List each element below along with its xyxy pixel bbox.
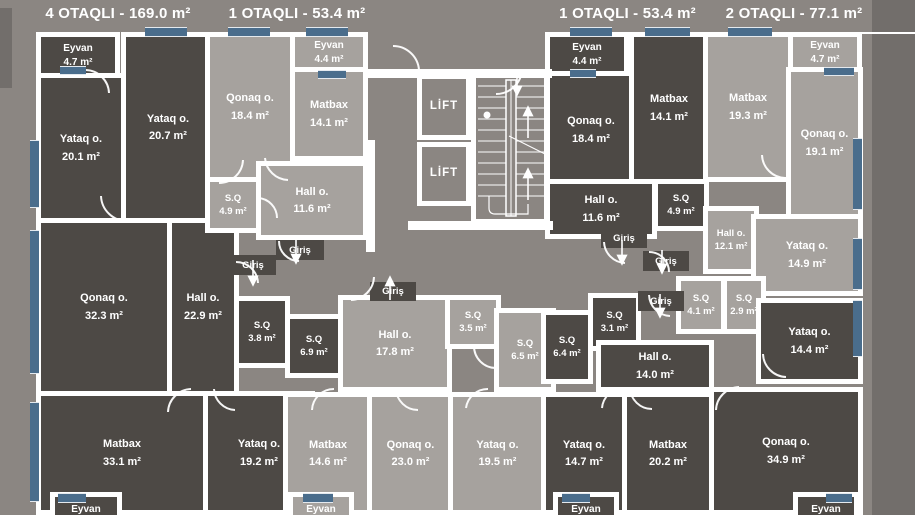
apartment-title-1otaqli-right: 1 OTAQLI - 53.4 m²: [555, 1, 700, 25]
window-segment: [562, 493, 590, 503]
room-label: Yataq o.: [238, 438, 280, 451]
window-segment: [60, 66, 86, 75]
room-label: Matbax: [650, 93, 688, 106]
apartment-title-2otaqli: 2 OTAQLI - 77.1 m²: [724, 1, 864, 25]
room-area: 19.5 m²: [479, 456, 517, 468]
room-label: Qonaq o.: [387, 439, 435, 452]
room-label: Yataq o.: [60, 133, 102, 146]
room-label: Eyvan: [571, 504, 600, 515]
room-area: 2.9 m²: [730, 306, 757, 317]
outside-shade-right: [872, 0, 915, 515]
room-area: 4.9 m²: [667, 206, 694, 217]
room-eyvan-4-4-left: Eyvan 4.4 m²: [290, 32, 368, 72]
apartment-title-4otaqli: 4 OTAQLI - 169.0 m²: [38, 1, 198, 25]
room-area: 14.7 m²: [565, 456, 603, 468]
apartment-title-1otaqli-left: 1 OTAQLI - 53.4 m²: [222, 1, 372, 25]
room-sq-4-9-left: S.Q 4.9 m²: [205, 177, 261, 233]
room-label: Eyvan: [63, 43, 92, 55]
room-area: 20.1 m²: [62, 151, 100, 163]
window-segment: [306, 27, 348, 37]
room-area: 11.6 m²: [582, 212, 619, 224]
window-segment: [228, 27, 270, 37]
room-area: 19.3 m²: [729, 110, 767, 122]
room-label: Matbax: [310, 99, 348, 112]
room-label: Hall o.: [186, 292, 219, 305]
room-area: 14.1 m²: [310, 117, 348, 129]
lift-label: LİFT: [430, 167, 458, 181]
room-eyvan-4-7-right: Eyvan 4.7 m²: [788, 32, 862, 72]
room-label: Eyvan: [306, 504, 335, 515]
room-sq-4-9-right: S.Q 4.9 m²: [653, 179, 709, 231]
room-sq-6-4: S.Q 6.4 m²: [541, 310, 593, 384]
room-label: S.Q: [306, 334, 322, 345]
lift-2: LİFT: [417, 142, 471, 206]
room-yataq-20-7: Yataq o. 20.7 m²: [121, 32, 215, 223]
room-label: Yataq o.: [786, 240, 828, 253]
room-qonaq-18-4-left: Qonaq o. 18.4 m²: [205, 32, 295, 182]
room-area: 6.4 m²: [553, 348, 580, 359]
room-qonaq-18-4-right: Qonaq o. 18.4 m²: [545, 71, 637, 189]
room-matbax-20-2: Matbax 20.2 m²: [622, 392, 714, 515]
entrance-label-bottom-right: Giriş: [638, 291, 684, 311]
room-area: 12.1 m²: [715, 241, 748, 252]
room-label: Eyvan: [71, 504, 100, 515]
room-area: 4.4 m²: [315, 54, 344, 65]
entrance-text: Giriş: [655, 256, 677, 267]
room-area: 34.9 m²: [767, 454, 805, 466]
room-qonaq-32-3: Qonaq o. 32.3 m²: [36, 218, 172, 396]
room-sq-6-9: S.Q 6.9 m²: [285, 314, 343, 378]
outside-shade-topleft: [0, 8, 12, 88]
corridor-wall-left: [366, 140, 375, 252]
room-qonaq-23-0: Qonaq o. 23.0 m²: [367, 392, 454, 515]
room-label: Yataq o.: [476, 439, 518, 452]
room-hall-11-6-left: Hall o. 11.6 m²: [256, 161, 368, 240]
room-label: S.Q: [465, 310, 481, 321]
entrance-label-center-left: Giriş: [276, 240, 324, 260]
room-label: S.Q: [254, 320, 270, 331]
room-label: Hall o.: [378, 329, 411, 342]
entrance-text: Giriş: [382, 286, 404, 297]
entrance-label-left: Giriş: [230, 255, 276, 275]
room-label: S.Q: [736, 293, 752, 304]
room-hall-17-8: Hall o. 17.8 m²: [338, 295, 452, 392]
staircase: [471, 71, 549, 224]
room-area: 20.2 m²: [649, 456, 687, 468]
window-segment: [30, 402, 39, 502]
room-area: 19.1 m²: [806, 146, 844, 158]
window-segment: [853, 238, 862, 290]
room-label: Yataq o.: [147, 113, 189, 126]
window-segment: [58, 493, 86, 503]
room-yataq-20-1: Yataq o. 20.1 m²: [36, 73, 126, 223]
room-sq-3-5: S.Q 3.5 m²: [445, 295, 501, 349]
corridor-wall-top: [366, 69, 552, 78]
room-yataq-14-9: Yataq o. 14.9 m²: [751, 214, 863, 296]
room-label: Hall o.: [295, 186, 328, 199]
window-segment: [145, 27, 187, 37]
room-label: Yataq o.: [563, 439, 605, 452]
room-area: 32.3 m²: [85, 310, 123, 322]
room-area: 3.8 m²: [248, 333, 275, 344]
room-area: 14.6 m²: [309, 456, 347, 468]
room-area: 20.7 m²: [149, 130, 187, 142]
entrance-text: Giriş: [242, 260, 264, 271]
window-segment: [570, 69, 596, 78]
room-hall-22-9: Hall o. 22.9 m²: [167, 218, 239, 396]
room-label: Qonaq o.: [801, 128, 849, 141]
room-area: 17.8 m²: [376, 346, 414, 358]
floor-plan: 4 OTAQLI - 169.0 m² 1 OTAQLI - 53.4 m² 1…: [0, 0, 915, 515]
room-area: 4.7 m²: [811, 54, 840, 65]
room-area: 14.1 m²: [650, 111, 688, 123]
entrance-label-right: Giriş: [643, 251, 689, 271]
room-matbax-19-3: Matbax 19.3 m²: [703, 32, 793, 182]
room-label: Eyvan: [314, 40, 343, 52]
room-label: S.Q: [559, 335, 575, 346]
window-segment: [645, 27, 690, 37]
room-label: Matbax: [649, 439, 687, 452]
room-area: 19.2 m²: [240, 456, 278, 468]
room-matbax-14-1-right: Matbax 14.1 m²: [629, 32, 709, 184]
window-segment: [826, 493, 852, 503]
room-label: Qonaq o.: [226, 92, 274, 105]
room-area: 22.9 m²: [184, 310, 222, 322]
window-segment: [570, 27, 612, 37]
room-label: S.Q: [517, 338, 533, 349]
room-label: Qonaq o.: [80, 292, 128, 305]
room-label: S.Q: [225, 193, 241, 204]
room-label: Eyvan: [810, 40, 839, 52]
room-area: 14.0 m²: [636, 369, 674, 381]
window-segment: [853, 138, 862, 210]
room-label: Eyvan: [811, 504, 840, 515]
room-area: 11.6 m²: [293, 203, 330, 215]
entrance-text: Giriş: [613, 233, 635, 244]
room-area: 3.1 m²: [601, 323, 628, 334]
entrance-label-center-right: Giriş: [601, 228, 647, 248]
room-area: 4.9 m²: [219, 206, 246, 217]
room-qonaq-19-1: Qonaq o. 19.1 m²: [786, 67, 863, 219]
room-matbax-14-1-left: Matbax 14.1 m²: [290, 67, 368, 161]
room-area: 18.4 m²: [231, 110, 269, 122]
entrance-text: Giriş: [289, 245, 311, 256]
room-area: 4.4 m²: [573, 56, 602, 67]
entrance-label-bottom-center: Giriş: [370, 282, 416, 301]
room-label: Yataq o.: [788, 326, 830, 339]
room-yataq-14-4: Yataq o. 14.4 m²: [756, 298, 863, 384]
room-area: 14.4 m²: [791, 344, 829, 356]
corridor-wall-bottom: [408, 221, 553, 230]
room-label: Eyvan: [572, 42, 601, 54]
window-segment: [30, 140, 39, 208]
room-label: S.Q: [693, 293, 709, 304]
room-hall-14-0: Hall o. 14.0 m²: [596, 340, 714, 392]
window-segment: [853, 300, 862, 357]
room-label: S.Q: [673, 193, 689, 204]
entrance-text: Giriş: [650, 296, 672, 307]
room-area: 23.0 m²: [392, 456, 430, 468]
room-area: 3.5 m²: [459, 323, 486, 334]
room-area: 14.9 m²: [788, 258, 826, 270]
room-label: S.Q: [606, 310, 622, 321]
room-label: Hall o.: [717, 228, 746, 239]
room-area: 6.5 m²: [511, 351, 538, 362]
room-area: 4.1 m²: [687, 306, 714, 317]
room-sq-3-8: S.Q 3.8 m²: [234, 296, 290, 368]
window-segment: [303, 493, 333, 503]
room-yataq-19-5: Yataq o. 19.5 m²: [448, 392, 547, 515]
lift-label: LİFT: [430, 100, 458, 114]
room-label: Hall o.: [638, 351, 671, 364]
room-area: 33.1 m²: [103, 456, 141, 468]
site-line: [860, 32, 915, 34]
window-segment: [728, 27, 772, 37]
window-segment: [30, 230, 39, 374]
window-segment: [824, 67, 854, 76]
window-segment: [318, 70, 346, 79]
room-label: Hall o.: [584, 194, 617, 207]
room-label: Matbax: [103, 438, 141, 451]
room-label: Matbax: [309, 439, 347, 452]
room-label: Qonaq o.: [762, 436, 810, 449]
room-label: Matbax: [729, 92, 767, 105]
room-area: 18.4 m²: [572, 133, 610, 145]
room-area: 6.9 m²: [300, 347, 327, 358]
room-label: Qonaq o.: [567, 115, 615, 128]
lift-1: LİFT: [417, 74, 471, 140]
